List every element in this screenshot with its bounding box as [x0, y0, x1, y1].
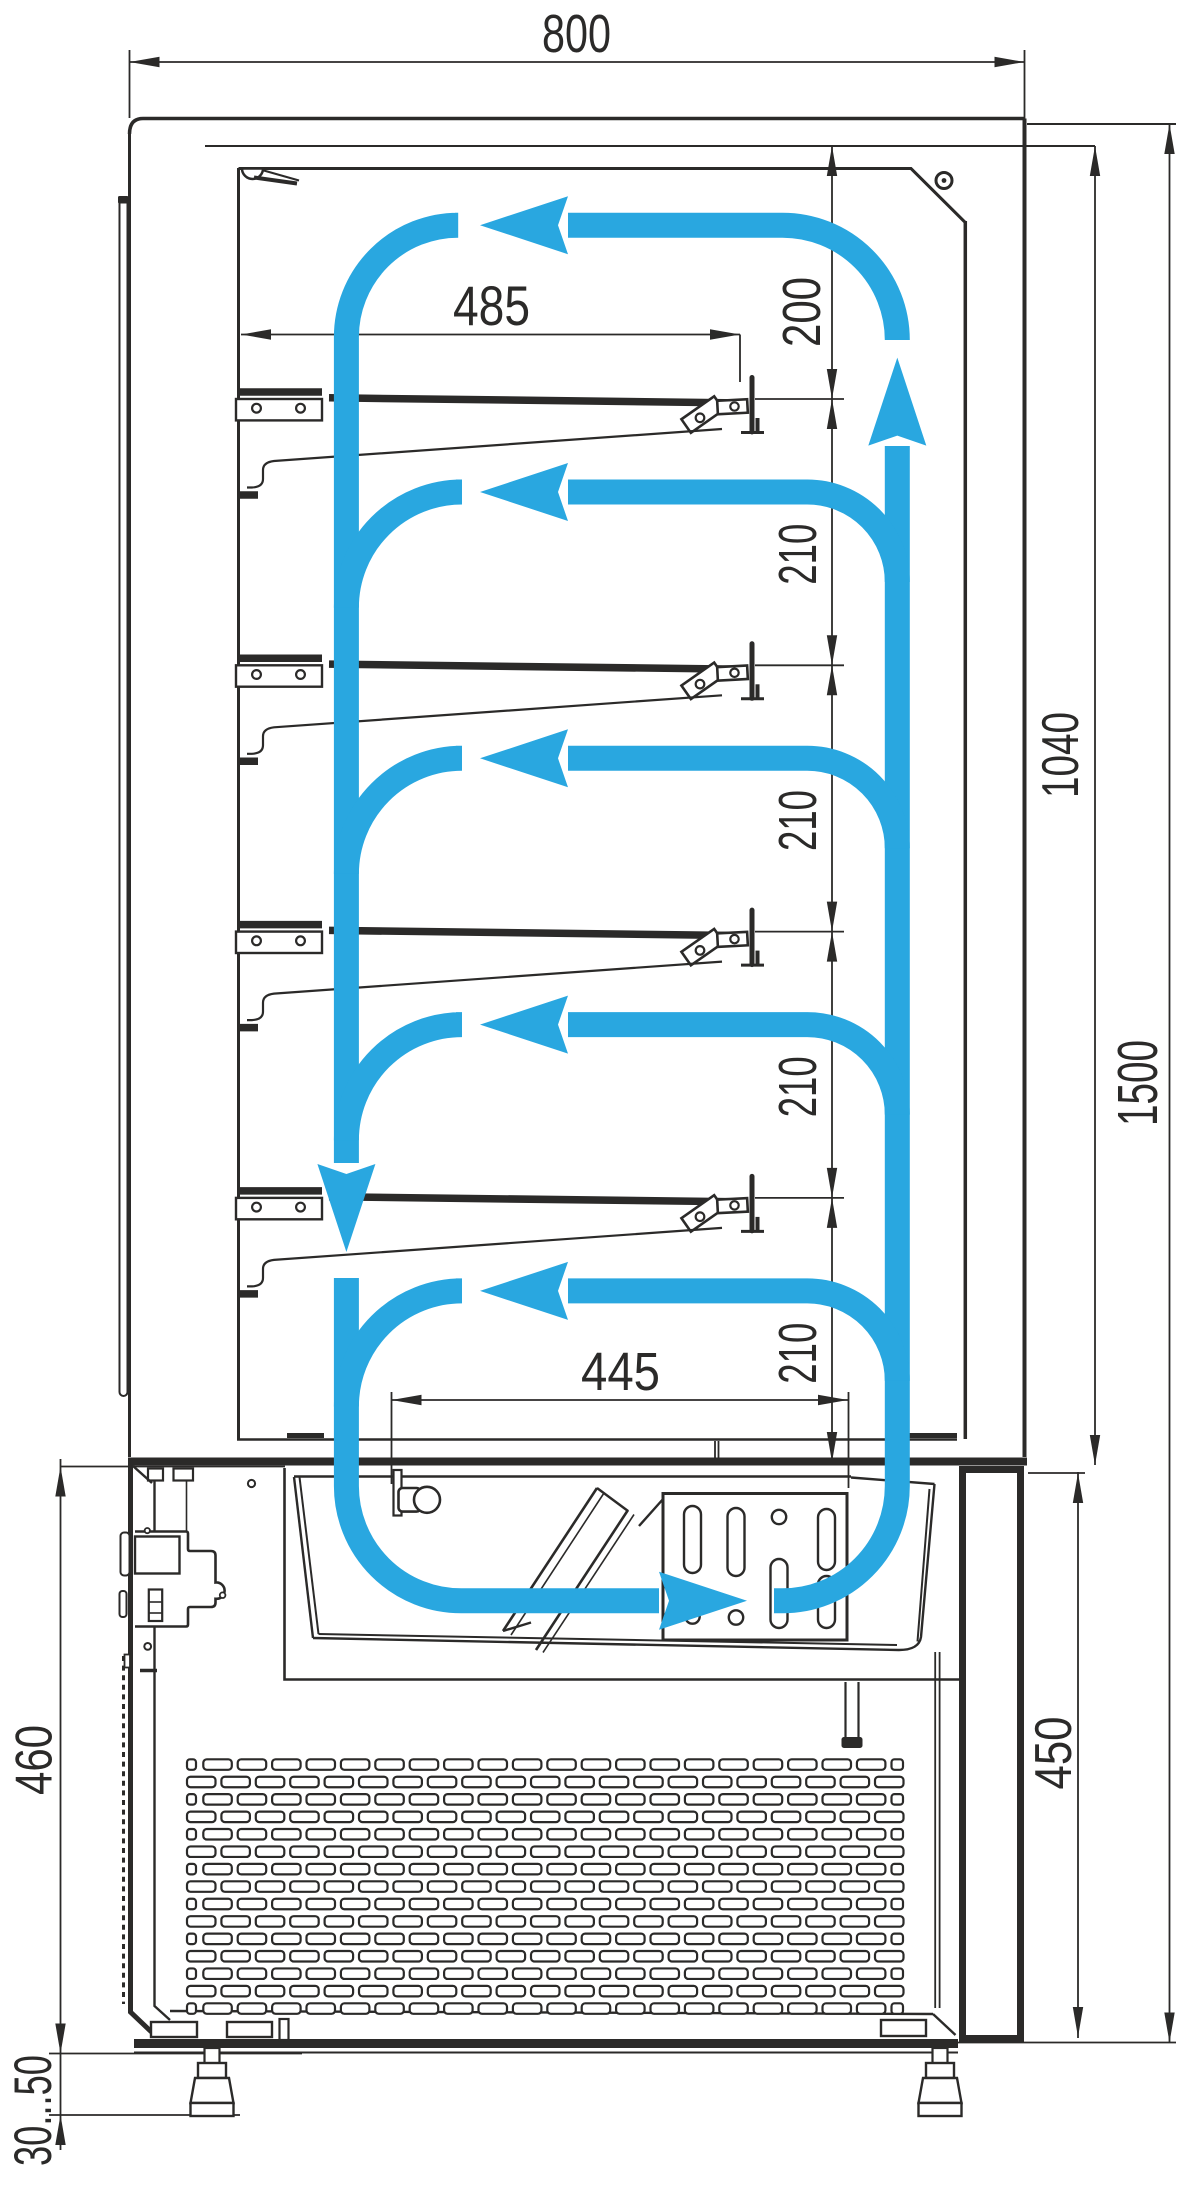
svg-text:800: 800 — [542, 4, 611, 64]
svg-text:460: 460 — [6, 1725, 64, 1795]
svg-text:210: 210 — [768, 1323, 828, 1384]
svg-text:210: 210 — [768, 790, 828, 851]
svg-text:485: 485 — [453, 274, 530, 337]
svg-text:200: 200 — [772, 277, 832, 347]
svg-text:210: 210 — [768, 1056, 828, 1117]
svg-text:450: 450 — [1025, 1717, 1083, 1790]
svg-text:210: 210 — [768, 524, 828, 585]
svg-text:1040: 1040 — [1032, 712, 1090, 798]
svg-text:445: 445 — [581, 1342, 660, 1402]
svg-text:1500: 1500 — [1106, 1040, 1170, 1126]
svg-text:30...50: 30...50 — [4, 2055, 63, 2166]
